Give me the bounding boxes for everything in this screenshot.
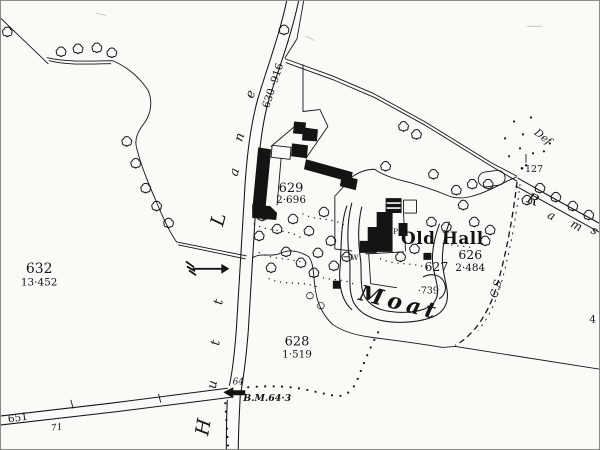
road-letter-lane-n: n (232, 131, 249, 144)
flow-arrow-icon (187, 262, 223, 275)
road-letter-lane-e: e (243, 88, 260, 101)
tree-icon (304, 226, 314, 236)
parcel-632-number: 632 (26, 261, 53, 277)
tree-icon (483, 179, 493, 189)
parcel-626-area: 2·484 (455, 262, 485, 274)
boundary-def-label: Def (531, 126, 555, 149)
tree-icon (309, 268, 319, 278)
parcel-626-number: 626 (458, 247, 482, 262)
tree-icon (92, 43, 102, 53)
tree-icon (319, 207, 329, 217)
road-letter-hutt-h: H (191, 417, 216, 439)
tree-icon (272, 224, 282, 234)
benchmark-arrow-icon (223, 387, 245, 398)
tree-icon (467, 179, 477, 189)
tree-icon (141, 183, 151, 193)
road-letter-rams-m: m (568, 217, 584, 235)
tree-icon (296, 258, 306, 268)
parcel-628-area: 1·519 (282, 348, 312, 360)
spot-height-71: 71 (50, 422, 63, 433)
tree-icon (469, 217, 479, 227)
flow-arrowhead-icon (221, 264, 229, 274)
spot-height-64: 64 (233, 377, 245, 387)
tree-icon (412, 130, 422, 140)
scrub-icon (307, 292, 314, 299)
tree-icon (313, 248, 323, 258)
tree-icon (266, 263, 276, 273)
northeast-hedge (285, 1, 517, 181)
tree-icon (107, 48, 117, 58)
road-630-number: 630 ·916 (260, 62, 286, 110)
old-hall-label: Old Hall (401, 228, 484, 248)
tree-icon (164, 218, 174, 228)
tree-icon (458, 200, 468, 210)
parcel-632-area: 13·452 (21, 277, 58, 289)
well-label: W (351, 253, 359, 262)
tree-icon (122, 137, 132, 147)
road-letter-hutt-t2: t (211, 297, 227, 306)
road-letter-hutt-t1: t (208, 338, 224, 347)
road-letter-rams-a: a (545, 208, 558, 224)
tree-icon (279, 25, 289, 35)
road-letter-rams-s: s (589, 223, 599, 238)
tree-icon (485, 225, 495, 235)
map-canvas: 632 13·452 629 2·696 628 1·519 626 2·484… (0, 0, 600, 450)
tree-icon (399, 122, 409, 132)
tree-icon (396, 252, 406, 262)
tree-icon (427, 217, 437, 227)
tree-icon (254, 231, 264, 241)
benchmark-label: B.M.64·3 (242, 393, 291, 404)
edge-parcel-number: 4 (589, 314, 596, 326)
road-letter-lane-l: L (206, 211, 231, 230)
smudge-mark (96, 13, 542, 41)
boundary-cs-label: C.S (488, 278, 505, 299)
ordnance-survey-map: 632 13·452 629 2·696 628 1·519 626 2·484… (1, 1, 599, 449)
tree-icon (381, 161, 391, 171)
tree-icon (2, 27, 12, 37)
road-letter-hutt-u: u (205, 379, 221, 390)
yard-walls (263, 65, 526, 288)
boundary-post-127: 127 (525, 164, 543, 175)
tree-icon (451, 185, 461, 195)
pump-label: P (393, 227, 398, 236)
tree-icon (131, 158, 141, 168)
scrub-icon (317, 302, 324, 309)
tree-icon (56, 47, 66, 57)
boundary-post-dot (521, 167, 524, 170)
trees-layer (2, 25, 593, 309)
parcel-629-area: 2·696 (276, 194, 306, 206)
tree-icon (429, 169, 439, 179)
tree-icon (329, 261, 339, 271)
parcel-628-number: 628 (285, 334, 310, 349)
tree-icon (326, 236, 336, 246)
hall-north-boundary (352, 169, 516, 198)
tree-icon (288, 214, 298, 224)
road-651-number: 651 (7, 411, 28, 426)
tree-icon (73, 44, 83, 54)
labels-layer: 632 13·452 629 2·696 628 1·519 626 2·484… (7, 62, 599, 438)
marks-layer (187, 167, 524, 398)
parcel-627-number: 627 (425, 259, 449, 274)
scan-artifacts (96, 13, 542, 41)
road-letter-lane-a: a (227, 166, 244, 178)
